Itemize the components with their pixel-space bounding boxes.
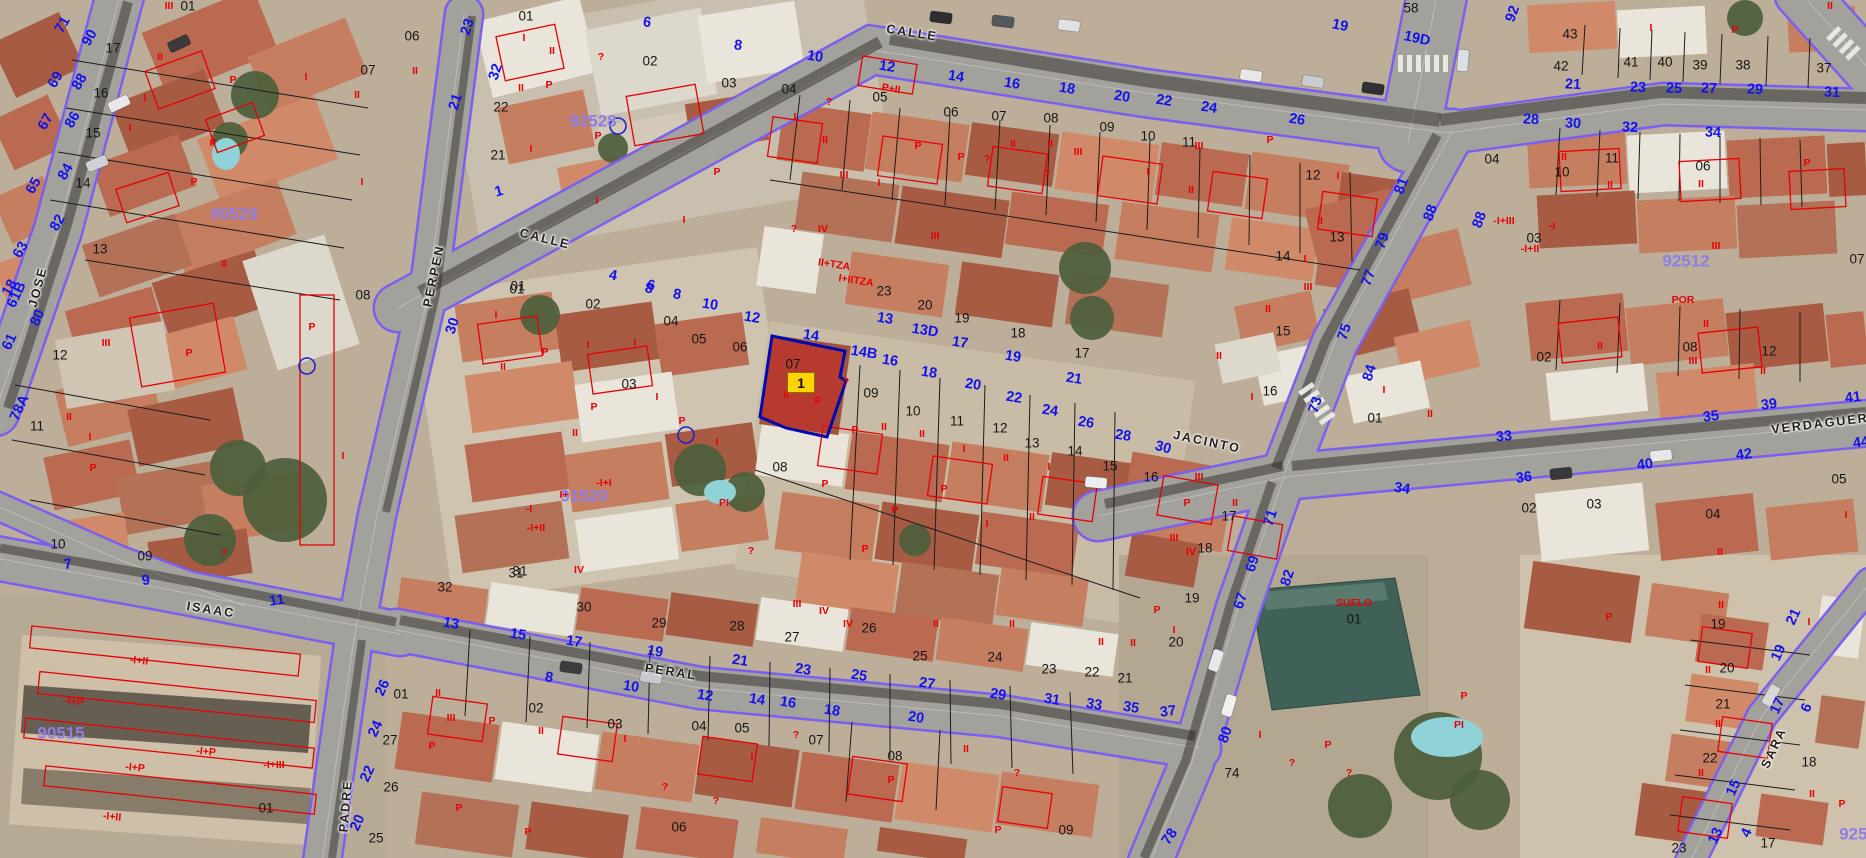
selected-parcel-marker-label: 1 — [797, 375, 805, 391]
aerial-imagery — [0, 0, 1866, 858]
cadastral-map-viewport[interactable]: CALLECALLEJACINTOVERDAGUERPERALISAACPADR… — [0, 0, 1866, 858]
selected-parcel-marker: 1 — [787, 372, 815, 393]
